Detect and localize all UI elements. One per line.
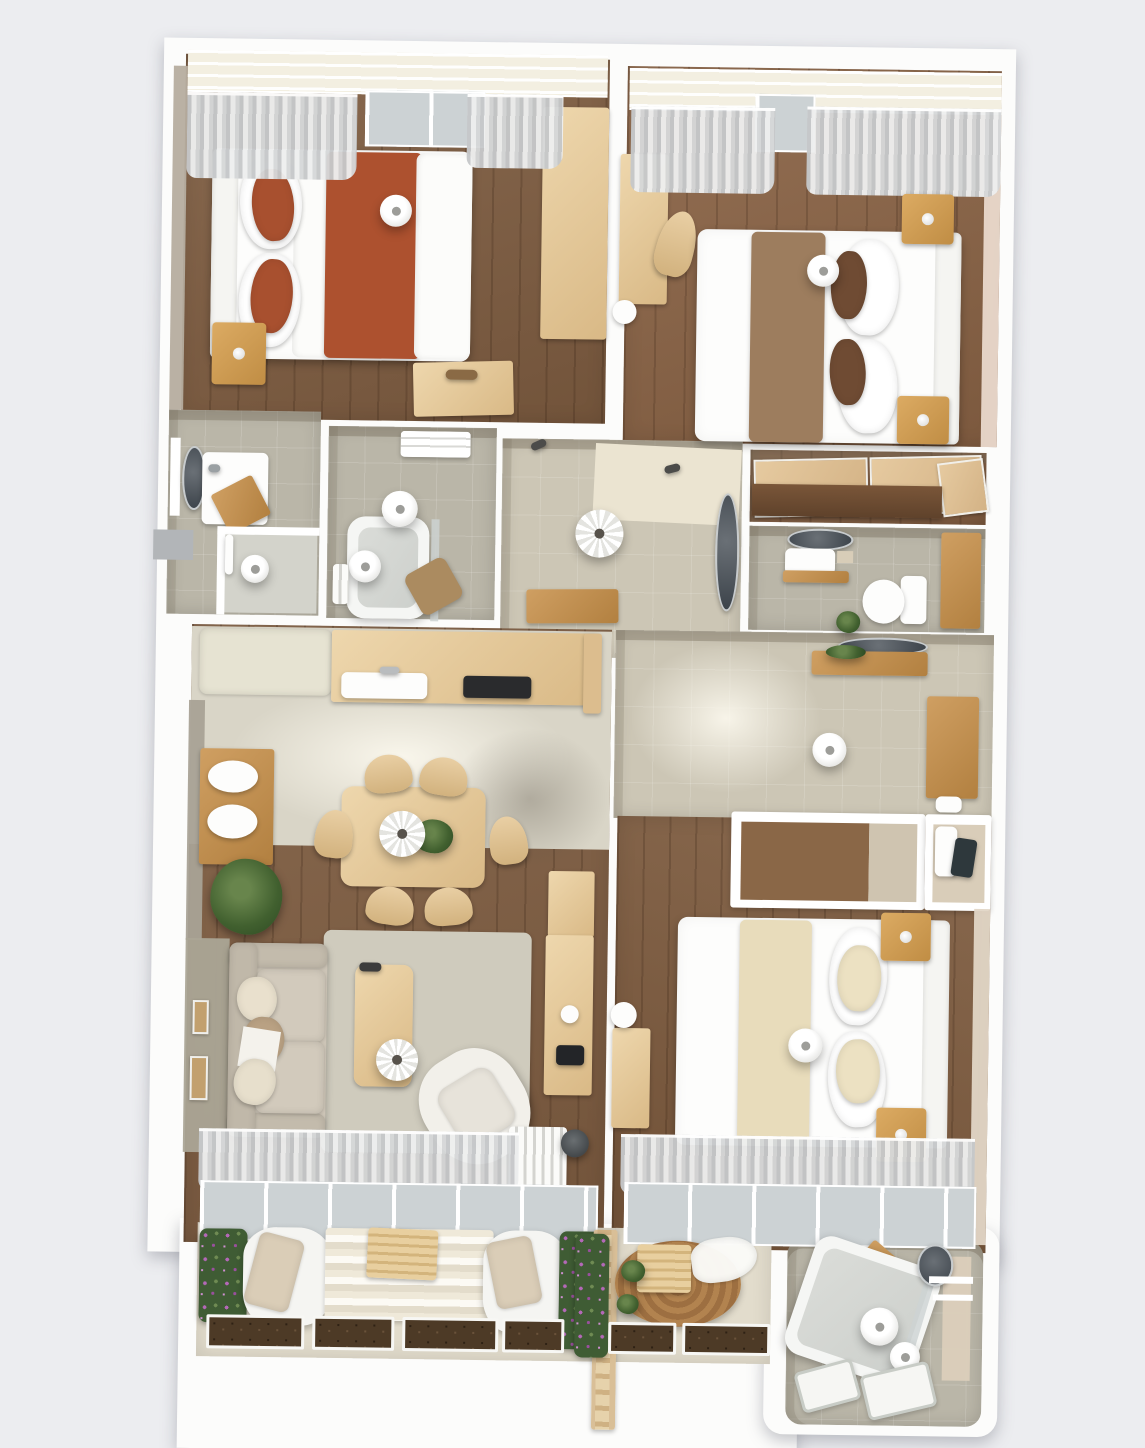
- bathroom2-towel-rail[interactable]: [400, 431, 470, 458]
- apartment-plan: [0, 0, 1145, 1448]
- bedroom2-curtain-left[interactable]: [630, 106, 775, 194]
- living-wall-frame-2[interactable]: [189, 1056, 208, 1100]
- balcony2-flowers[interactable]: [574, 1233, 610, 1357]
- floorplan-canvas: [0, 0, 1145, 1448]
- bedroom3-cream-pillow-bottom[interactable]: [835, 1039, 880, 1104]
- bathroom1-window: [170, 438, 181, 516]
- wc-soap-tray[interactable]: [837, 551, 853, 563]
- living-table-hooks[interactable]: [359, 962, 381, 971]
- bedroom3-closet-floor-tile: [868, 823, 917, 902]
- bedroom2-nightstand-top[interactable]: [902, 194, 955, 245]
- bedroom1-duvet-right: [414, 153, 473, 360]
- closet-front-beam: [752, 484, 942, 519]
- kitchen-faucet[interactable]: [379, 667, 399, 674]
- closet-shelf-panel-3[interactable]: [937, 458, 989, 517]
- bedroom2-curtain-right[interactable]: [806, 106, 1001, 197]
- living-left-wall-face-2: [183, 938, 230, 1153]
- kitchen-tall-cabinet[interactable]: [199, 628, 332, 696]
- dining-shelf-dish-1[interactable]: [208, 760, 258, 793]
- bedroom1-bench-handle[interactable]: [446, 369, 478, 379]
- living-floor-plant[interactable]: [210, 858, 283, 935]
- bedroom2-nightstand-bottom[interactable]: [897, 396, 950, 445]
- bedroom1-nightstand[interactable]: [211, 322, 266, 385]
- utility-shaft: [153, 529, 193, 560]
- balcony1-planter-1[interactable]: [206, 1314, 304, 1349]
- bedroom1-red-runner[interactable]: [324, 152, 423, 359]
- living-tv[interactable]: [556, 1045, 584, 1065]
- living-tv-unit-top[interactable]: [548, 871, 595, 938]
- balcony1-flowers-left[interactable]: [198, 1228, 247, 1323]
- bedroom1-curtain-right[interactable]: [467, 94, 564, 169]
- wc-plant[interactable]: [836, 611, 860, 633]
- balcony2-shrub-2[interactable]: [617, 1294, 639, 1314]
- bathroom2-radiator[interactable]: [332, 564, 349, 604]
- wc-cabinet[interactable]: [940, 532, 981, 629]
- balcony1-planter-3[interactable]: [402, 1317, 498, 1352]
- dining-shelf-dish-2[interactable]: [207, 804, 257, 839]
- bathroom1-faucet[interactable]: [208, 464, 220, 472]
- corridor-cabinet[interactable]: [926, 696, 979, 799]
- living-wall-frame-1[interactable]: [192, 1000, 208, 1034]
- balcony2-shrub-1[interactable]: [621, 1260, 645, 1282]
- bathroom1-shower-frame-top: [217, 526, 319, 535]
- balcony2-planter-1[interactable]: [608, 1322, 676, 1355]
- bedroom3-nightstand-top[interactable]: [880, 913, 931, 962]
- bathroom3-shelf-1: [929, 1276, 973, 1284]
- bedroom3-balcony-doors[interactable]: [624, 1182, 977, 1249]
- bedroom1-curtain-left[interactable]: [186, 92, 357, 180]
- wc-sink-shelf: [783, 570, 849, 583]
- bathroom3-shelf-2: [933, 1294, 973, 1301]
- kitchen-sink[interactable]: [341, 672, 427, 699]
- balcony1-wood-table[interactable]: [366, 1227, 438, 1280]
- bedroom3-closet-floor-wood: [740, 822, 869, 902]
- bedroom3-desk[interactable]: [611, 1028, 650, 1129]
- kitchen-cooktop[interactable]: [463, 676, 531, 699]
- bathroom1-shower-bar[interactable]: [225, 534, 234, 574]
- kitchen-counter-corner[interactable]: [583, 633, 602, 713]
- corridor-small-item[interactable]: [936, 796, 962, 812]
- balcony1-planter-4[interactable]: [502, 1318, 564, 1353]
- hall-bench[interactable]: [526, 589, 618, 623]
- balcony1-planter-2[interactable]: [312, 1316, 394, 1351]
- balcony2-planter-2[interactable]: [682, 1323, 770, 1356]
